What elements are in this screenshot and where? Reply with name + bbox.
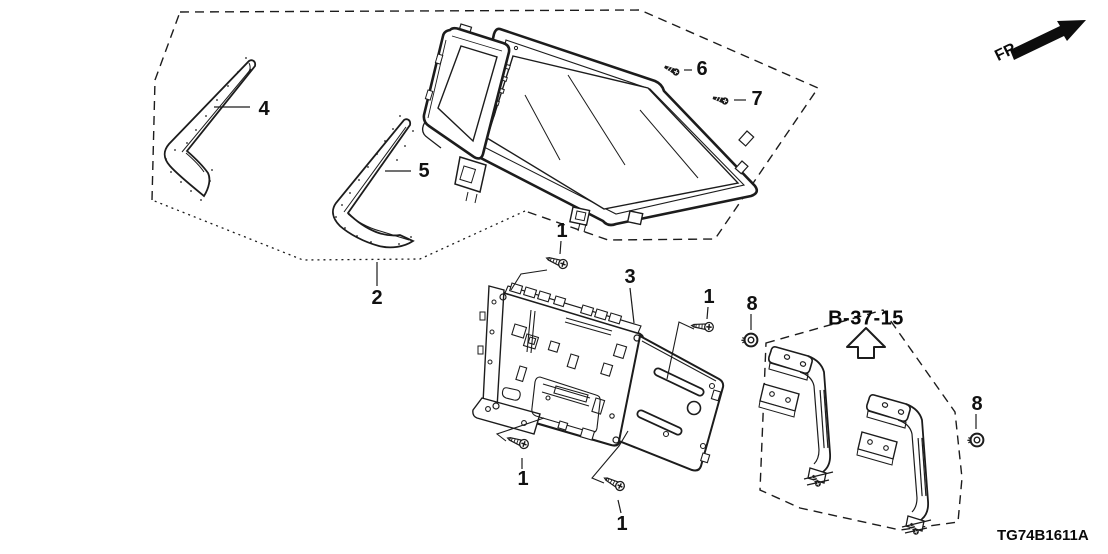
bolt-8-left <box>741 334 757 347</box>
display-side-tabs <box>735 131 753 174</box>
reference-arrow-icon <box>847 328 885 358</box>
callout-5-label: 5 <box>418 161 429 181</box>
diagram-code: TG74B1611A <box>997 527 1089 544</box>
garnish-part-4 <box>165 57 256 201</box>
screw-7 <box>712 94 729 105</box>
callout-1-right-label: 1 <box>703 287 714 307</box>
screw-1-bottom-left <box>506 434 530 450</box>
diagram-line-art <box>0 0 1108 554</box>
body-bracket-right <box>857 395 931 536</box>
screw-1-right <box>691 321 714 332</box>
callout-6-label: 6 <box>696 59 707 79</box>
garnish-part-5 <box>333 115 414 248</box>
callout-1-bottom-center-label: 1 <box>616 514 627 534</box>
screw-6 <box>664 64 681 77</box>
callout-7-label: 7 <box>751 89 762 109</box>
callout-1-top-label: 1 <box>556 221 567 241</box>
callout-1-bottom-left-label: 1 <box>517 469 528 489</box>
body-bracket-left <box>759 347 833 488</box>
callout-2-label: 2 <box>371 288 382 308</box>
callout-3-label: 3 <box>624 267 635 287</box>
screw-1-bottom-center <box>602 474 626 492</box>
callout-8-right-label: 8 <box>971 394 982 414</box>
bolt-8-right <box>967 434 983 447</box>
screw-1-top <box>545 254 569 270</box>
parts-diagram: 4 5 2 6 7 1 3 1 8 1 1 8 B-37-15 FR. TG74… <box>0 0 1108 554</box>
reference-link-b-37-15[interactable]: B-37-15 <box>828 308 904 331</box>
audio-tuner-unit <box>473 283 723 471</box>
callout-4-label: 4 <box>258 99 269 119</box>
callout-8-left-label: 8 <box>746 294 757 314</box>
